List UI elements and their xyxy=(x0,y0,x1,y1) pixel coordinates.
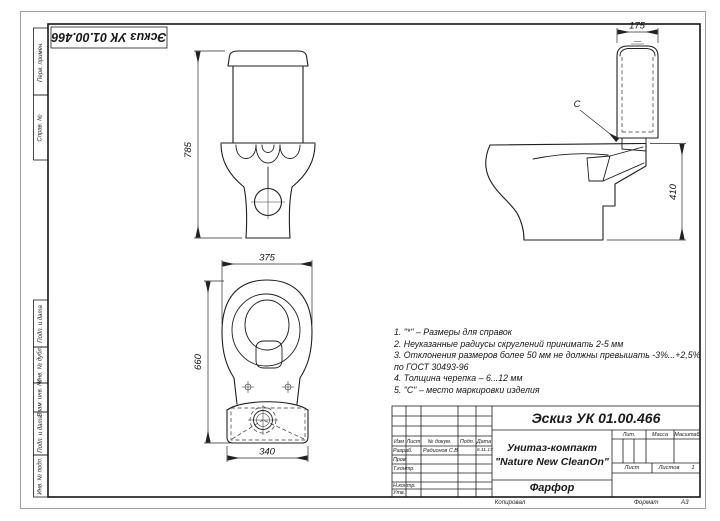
row-razrab-label: Разраб. xyxy=(393,448,413,454)
cistern-side xyxy=(617,46,658,138)
dim-label-785: 785 xyxy=(183,141,194,158)
note-line: 1. "*" – Размеры для справок xyxy=(394,327,700,339)
sheets-value: 1 xyxy=(686,463,700,473)
side-view: 175 410 C xyxy=(486,21,686,241)
cistern-lid xyxy=(228,51,308,66)
frame-strip-inv-dubl: Инв. № дубл. xyxy=(33,347,48,383)
sheet-label: Лист xyxy=(612,463,652,473)
drawing-sheet: { "corner_stamp": { "designation": "Эски… xyxy=(0,0,720,521)
mass-label: Масса xyxy=(646,430,674,439)
dim-label-410: 410 xyxy=(668,183,679,200)
dim-footprint-width: 340 xyxy=(227,446,308,462)
corner-stamp-designation: Эскиз УК 01.00.466 xyxy=(51,27,167,48)
col-doc: № докум. xyxy=(421,437,458,446)
tank-footprint-arch xyxy=(227,402,308,410)
product-name: Унитаз-компакт "Nature New CleanOn" xyxy=(492,431,612,479)
bowl-wing-right xyxy=(292,144,315,187)
note-line: по ГОСТ 30493-96 xyxy=(394,362,700,374)
side-profile-right xyxy=(524,144,646,241)
row-utv-label: Утв. xyxy=(393,490,405,496)
side-profile-left xyxy=(486,145,524,240)
title-block-designation: Эскиз УК 01.00.466 xyxy=(492,407,700,429)
note-line: 5. "С" – место маркировки изделия xyxy=(394,385,700,397)
marking-callout: C xyxy=(574,99,617,140)
col-data: Дата xyxy=(476,437,492,446)
marking-label: C xyxy=(574,99,581,110)
product-name-line2: "Nature New CleanOn" xyxy=(495,455,609,469)
copied-label: Копировал xyxy=(470,499,550,506)
row-razrab-date: 6.11.17 xyxy=(477,448,493,453)
scale-label: Масштаб xyxy=(674,430,700,439)
col-list: Лист xyxy=(406,437,421,446)
frame-strip-podp-data-1: Подп. и дата xyxy=(33,300,48,347)
bowl-wing-left xyxy=(221,144,244,187)
front-view: 785 xyxy=(183,51,315,238)
dim-label-175: 175 xyxy=(629,21,646,32)
dim-top-length: 660 xyxy=(193,281,230,443)
row-tkontr-label: Т.контр. xyxy=(393,466,415,472)
material-label: Фарфор xyxy=(492,479,612,496)
technical-notes: 1. "*" – Размеры для справок 2. Неуказан… xyxy=(394,327,700,397)
rim-line xyxy=(490,144,646,146)
funnel xyxy=(587,156,610,181)
lit-label: Лит. xyxy=(612,430,646,439)
row-nkontr-label: Н.контр. xyxy=(393,483,416,489)
format-label: Формат xyxy=(634,499,659,506)
col-izm: Изм xyxy=(392,437,406,446)
format-value: А3 xyxy=(681,499,689,506)
frame-strip-sprav-n: Справ. № xyxy=(33,95,48,160)
note-line: 3. Отклонения размеров более 50 мм не до… xyxy=(394,350,700,362)
dim-label-660: 660 xyxy=(193,353,204,370)
seat-ring xyxy=(232,294,300,366)
cistern-body xyxy=(233,66,303,143)
sheets-label: Листов xyxy=(652,463,686,473)
note-line: 2. Неуказанные радиусы скруглений приним… xyxy=(394,339,700,351)
dim-label-375: 375 xyxy=(259,253,276,264)
frame-strip-vzam-inv: Взам. инв. № xyxy=(33,383,48,412)
frame-strip-perv-primen: Перв. примен. xyxy=(33,28,48,95)
frame-strip-inv-podl: Инв. № подл. xyxy=(33,455,48,497)
drawing-canvas: 785 175 410 C xyxy=(0,0,720,521)
dim-label-340: 340 xyxy=(259,447,276,458)
frame-strip-podp-data-2: Подп. и дата xyxy=(33,412,48,455)
col-podp: Подп. xyxy=(458,437,476,446)
top-view: 375 660 340 xyxy=(193,253,312,463)
bowl-opening xyxy=(245,300,289,350)
row-razrab-name: Радионов С.В xyxy=(423,448,458,454)
row-prov-label: Пров. xyxy=(393,457,407,463)
mount-holes xyxy=(242,381,294,393)
product-name-line1: Унитаз-компакт xyxy=(507,441,597,455)
note-line: 4. Толщина черепка – 6...12 мм xyxy=(394,373,700,385)
